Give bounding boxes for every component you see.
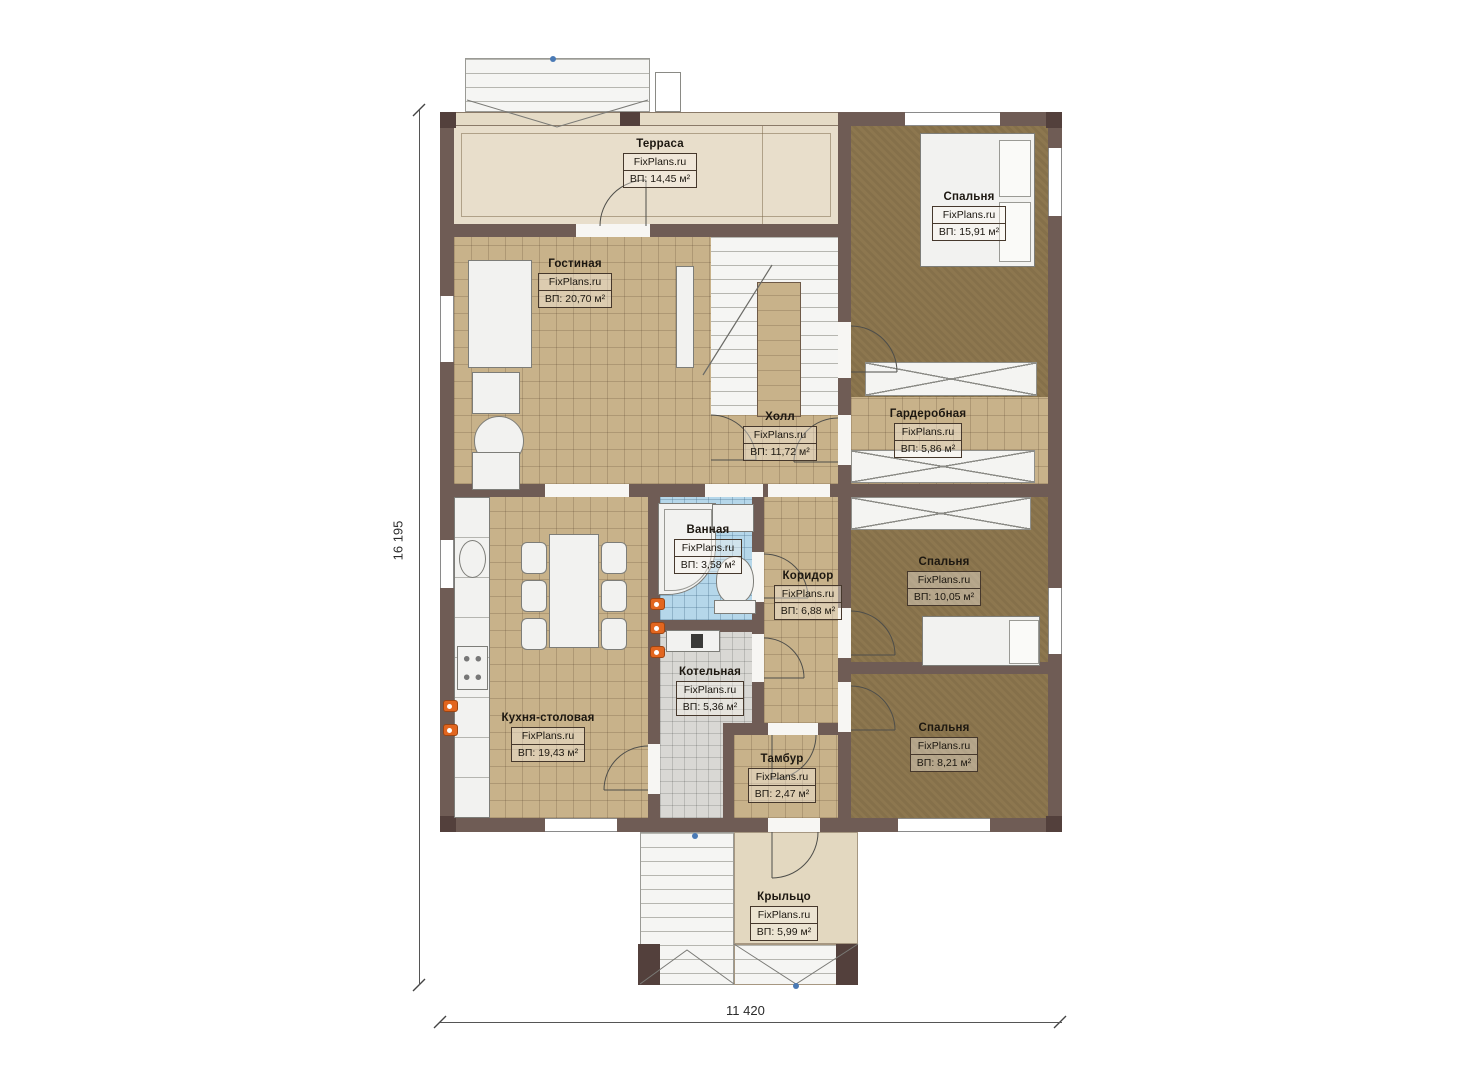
brand-watermark: FixPlans.ru: [895, 424, 961, 441]
room-name: Спальня: [900, 556, 988, 569]
room-area: ВП: 20,70 м²: [539, 291, 611, 307]
room-label-wardrobe: Гардеробная FixPlans.ru ВП: 5,86 м²: [884, 408, 972, 458]
brand-watermark: FixPlans.ru: [908, 572, 980, 589]
porch-pillar-left: [638, 944, 660, 985]
room-area: ВП: 15,91 м²: [933, 224, 1005, 240]
bed-1-pillow-top: [999, 140, 1031, 197]
armchair-1: [472, 372, 520, 414]
room-label-bedroom-1: Спальня FixPlans.ru ВП: 15,91 м²: [925, 191, 1013, 241]
room-label-vestibule: Тамбур FixPlans.ru ВП: 2,47 м²: [740, 753, 824, 803]
floor-plan-canvas: Терраса FixPlans.ru ВП: 14,45 м² Спальня…: [0, 0, 1474, 1080]
room-area: ВП: 6,88 м²: [775, 603, 841, 619]
room-area: ВП: 5,99 м²: [751, 924, 817, 940]
opening-hall-corridor: [768, 484, 830, 497]
brand-watermark: FixPlans.ru: [512, 728, 584, 745]
opening-hall-bedroom-1: [838, 322, 851, 378]
room-label-bedroom-3: Спальня FixPlans.ru ВП: 8,21 м²: [902, 722, 986, 772]
room-label-kitchen-dining: Кухня-столовая FixPlans.ru ВП: 19,43 м²: [490, 712, 606, 762]
room-label-boiler: Котельная FixPlans.ru ВП: 5,36 м²: [664, 666, 756, 716]
window-bedroom-1-top: [905, 112, 1000, 126]
brand-watermark: FixPlans.ru: [751, 907, 817, 924]
corner-top-right: [1046, 112, 1062, 128]
dimension-line-horizontal: [440, 1022, 1062, 1023]
window-bedroom-3-bottom: [898, 818, 990, 832]
wall-vestibule-left: [723, 723, 734, 832]
brand-watermark: FixPlans.ru: [675, 540, 741, 557]
room-label-bedroom-2: Спальня FixPlans.ru ВП: 10,05 м²: [900, 556, 988, 606]
brand-watermark: FixPlans.ru: [677, 682, 743, 699]
dining-chair: [601, 542, 627, 574]
stove: [457, 646, 488, 690]
boiler-unit-panel: [691, 634, 703, 648]
room-name: Терраса: [612, 138, 708, 151]
corner-bottom-right: [1046, 816, 1062, 832]
brand-watermark: FixPlans.ru: [911, 738, 977, 755]
opening-living-kitchen: [545, 484, 629, 497]
radiator-icon: [443, 700, 458, 712]
room-name: Тамбур: [740, 753, 824, 766]
room-area: ВП: 14,45 м²: [624, 171, 696, 187]
room-name: Кухня-столовая: [490, 712, 606, 725]
room-name: Коридор: [768, 570, 848, 583]
room-label-terrace: Терраса FixPlans.ru ВП: 14,45 м²: [612, 138, 708, 188]
opening-hall-bath: [705, 484, 763, 497]
radiator-icon: [650, 598, 665, 610]
wardrobe-cabinet-1: [865, 362, 1037, 396]
armchair-2: [472, 452, 520, 490]
dining-chair: [521, 618, 547, 650]
brand-watermark: FixPlans.ru: [933, 207, 1005, 224]
room-area: ВП: 2,47 м²: [749, 786, 815, 802]
room-name: Спальня: [902, 722, 986, 735]
room-area: ВП: 5,36 м²: [677, 699, 743, 715]
room-name: Спальня: [925, 191, 1013, 204]
room-name: Холл: [738, 411, 822, 424]
dining-chair: [601, 580, 627, 612]
staircase-center-column: [757, 282, 801, 417]
room-label-porch: Крыльцо FixPlans.ru ВП: 5,99 м²: [742, 891, 826, 941]
dining-chair: [521, 580, 547, 612]
brand-watermark: FixPlans.ru: [749, 769, 815, 786]
opening-entrance-door: [768, 818, 820, 832]
bed-2-pillow: [1009, 620, 1039, 664]
opening-wardrobe-door: [838, 415, 851, 465]
opening-bedroom-3-door: [838, 682, 851, 732]
room-area: ВП: 19,43 м²: [512, 745, 584, 761]
room-label-living-room: Гостиная FixPlans.ru ВП: 20,70 м²: [530, 258, 620, 308]
brand-watermark: FixPlans.ru: [539, 274, 611, 291]
corner-top-left: [440, 112, 456, 128]
opening-kitchen-door: [648, 744, 660, 794]
brand-watermark: FixPlans.ru: [744, 427, 816, 444]
opening-terrace-door: [576, 224, 650, 237]
window-kitchen-bottom: [545, 818, 617, 832]
toilet-tank: [714, 600, 756, 614]
window-bedroom-1-right: [1048, 148, 1062, 216]
kitchen-sink: [459, 540, 486, 578]
room-area: ВП: 10,05 м²: [908, 589, 980, 605]
boiler-unit: [666, 630, 720, 652]
sofa: [468, 260, 532, 368]
dimension-label-vertical: 16 195: [390, 521, 405, 561]
dining-table: [549, 534, 599, 648]
room-label-bathroom: Ванная FixPlans.ru ВП: 3,58 м²: [668, 524, 748, 574]
brand-watermark: FixPlans.ru: [775, 586, 841, 603]
room-area: ВП: 8,21 м²: [911, 755, 977, 771]
radiator-icon: [650, 646, 665, 658]
opening-vestibule-door: [768, 723, 818, 735]
dining-chair: [521, 542, 547, 574]
dining-chair: [601, 618, 627, 650]
radiator-icon: [650, 622, 665, 634]
room-area: ВП: 3,58 м²: [675, 557, 741, 573]
room-area: ВП: 5,86 м²: [895, 441, 961, 457]
window-kitchen-left: [440, 540, 454, 588]
terrace-post-mid: [620, 112, 640, 126]
window-bedroom-2-right: [1048, 588, 1062, 654]
room-name: Котельная: [664, 666, 756, 679]
terrace-outdoor-steps: [465, 58, 650, 112]
bed-bedroom-2: [922, 616, 1040, 666]
room-label-hall: Холл FixPlans.ru ВП: 11,72 м²: [738, 411, 822, 461]
wall-right: [1048, 112, 1062, 832]
brand-watermark: FixPlans.ru: [624, 154, 696, 171]
room-name: Гостиная: [530, 258, 620, 271]
corner-bottom-left: [440, 816, 456, 832]
radiator-icon: [443, 724, 458, 736]
dimension-line-vertical: [419, 110, 420, 985]
room-name: Крыльцо: [742, 891, 826, 904]
terrace-divider-line: [762, 126, 763, 224]
room-area: ВП: 11,72 м²: [744, 444, 816, 460]
dimension-label-horizontal: 11 420: [726, 1003, 765, 1018]
wardrobe-cabinet-3: [851, 497, 1031, 530]
room-name: Ванная: [668, 524, 748, 537]
tv-stand: [676, 266, 694, 368]
chimney-box: [655, 72, 681, 112]
window-living-room-left: [440, 296, 454, 362]
room-name: Гардеробная: [884, 408, 972, 421]
room-label-corridor: Коридор FixPlans.ru ВП: 6,88 м²: [768, 570, 848, 620]
porch-pillar-right: [836, 944, 858, 985]
